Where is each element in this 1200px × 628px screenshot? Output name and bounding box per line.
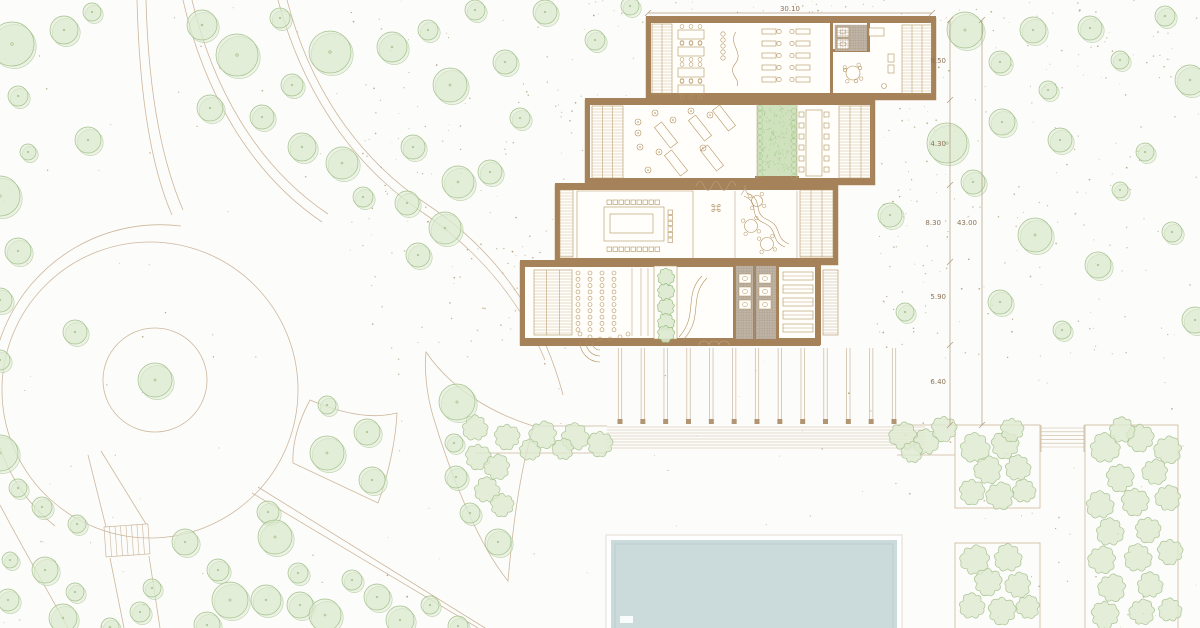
ground-speckle	[552, 219, 553, 220]
side-table	[869, 28, 884, 36]
ground-speckle	[401, 1, 402, 2]
ground-speckle	[391, 347, 392, 348]
ground-speckle	[618, 25, 619, 26]
bush	[994, 544, 1022, 571]
bush	[1124, 544, 1152, 571]
tree-canopy	[1053, 321, 1071, 339]
tree-canopy	[281, 74, 303, 96]
ground-speckle	[961, 288, 963, 290]
tree	[401, 135, 427, 162]
ground-speckle	[425, 207, 426, 208]
ground-speckle	[978, 140, 979, 141]
ground-speckle	[481, 190, 482, 191]
ground-speckle	[1170, 76, 1171, 77]
tree-canopy	[1085, 252, 1111, 278]
tree-canopy	[621, 0, 639, 15]
tree	[258, 520, 294, 557]
ground-speckle	[387, 574, 389, 576]
tree-canopy	[75, 127, 101, 153]
ground-speckle	[898, 189, 900, 191]
ground-speckle	[923, 265, 925, 267]
tree-canopy	[250, 105, 274, 129]
ground-speckle	[1153, 36, 1154, 37]
ground-speckle	[561, 112, 562, 113]
tree	[0, 288, 14, 315]
ground-speckle	[119, 263, 120, 264]
ground-speckle	[978, 354, 979, 355]
ground-speckle	[766, 524, 767, 525]
ground-speckle	[529, 236, 531, 238]
ground-speckle	[1012, 319, 1013, 320]
ground-speckle	[1095, 576, 1096, 577]
tree	[448, 616, 470, 628]
ground-speckle	[582, 150, 583, 151]
path-edge	[137, 0, 172, 215]
tree-canopy	[395, 191, 419, 215]
tree-canopy	[1018, 218, 1052, 252]
ground-speckle	[1009, 22, 1010, 23]
pool-water	[611, 540, 897, 628]
pergola-beam	[755, 348, 760, 424]
ground-speckle	[1061, 50, 1063, 52]
ground-speckle	[893, 309, 894, 310]
ground-speckle	[901, 344, 902, 345]
pergola-post	[869, 419, 874, 424]
ground-speckle	[1079, 10, 1081, 12]
bush	[1016, 595, 1040, 618]
wall	[755, 176, 799, 183]
ground-speckle	[1085, 192, 1086, 193]
ground-speckle	[372, 208, 374, 210]
ground-speckle	[1189, 284, 1191, 286]
ground-speckle	[261, 90, 263, 92]
tree-canopy	[32, 557, 58, 583]
tree	[395, 191, 421, 218]
wall	[520, 260, 525, 345]
building	[520, 16, 936, 362]
tree-canopy	[187, 10, 217, 40]
ground-speckle	[380, 100, 381, 101]
ground-speckle	[142, 336, 144, 338]
tree	[989, 51, 1013, 76]
ground-speckle	[614, 10, 615, 11]
ground-speckle	[1196, 585, 1197, 586]
tree	[172, 529, 200, 558]
ground-speckle	[1011, 331, 1013, 333]
ground-speckle	[555, 105, 556, 106]
ground-speckle	[965, 352, 966, 353]
ground-speckle	[1074, 467, 1075, 468]
ground-speckle	[990, 11, 992, 13]
ground-speckle	[1040, 355, 1041, 356]
ground-speckle	[1070, 352, 1071, 353]
ground-speckle	[1047, 46, 1048, 47]
ground-speckle	[1033, 122, 1034, 123]
dimension-top-label: 30.10	[780, 5, 800, 13]
ground-speckle	[366, 155, 368, 157]
ground-speckle	[373, 87, 375, 89]
tree	[1162, 222, 1184, 245]
tree	[0, 22, 36, 69]
tree	[138, 363, 174, 400]
pergola-post	[892, 419, 897, 424]
tree-canopy	[212, 582, 248, 618]
tree-canopy	[1112, 182, 1128, 198]
ground-speckle	[925, 312, 926, 313]
ground-speckle	[1069, 533, 1070, 534]
tree-canopy	[896, 303, 914, 321]
ground-speckle	[1058, 517, 1060, 519]
ground-speckle	[513, 142, 514, 143]
bush	[988, 597, 1016, 625]
ground-speckle	[560, 423, 561, 424]
ground-speckle	[1167, 59, 1168, 60]
tree	[1175, 65, 1200, 98]
ground-speckle	[1165, 382, 1166, 383]
ground-speckle	[937, 332, 939, 334]
tree-canopy	[270, 8, 290, 28]
ground-speckle	[471, 258, 473, 260]
tree-canopy	[1078, 16, 1102, 40]
ground-speckle	[398, 358, 400, 360]
ground-speckle	[417, 342, 418, 343]
ground-speckle	[1003, 17, 1005, 19]
ground-speckle	[575, 102, 577, 104]
ground-speckle	[1169, 59, 1170, 60]
ground-speckle	[945, 220, 946, 221]
tree-canopy	[130, 602, 150, 622]
tree-canopy	[288, 563, 308, 583]
ground-speckle	[753, 7, 754, 8]
ground-speckle	[831, 6, 832, 7]
site-plan-drawing: 30.10 9.504.308.305.906.4043.00	[0, 0, 1200, 628]
tree-canopy	[1182, 307, 1200, 333]
tree-canopy	[0, 589, 19, 611]
ground-speckle	[390, 142, 391, 143]
ground-speckle	[633, 58, 634, 59]
tree	[8, 86, 30, 109]
pergola-post	[755, 419, 760, 424]
ground-speckle	[911, 179, 912, 180]
ground-speckle	[1031, 576, 1032, 577]
ground-speckle	[1061, 87, 1063, 89]
ground-speckle	[563, 178, 565, 180]
tree-canopy	[5, 238, 31, 264]
ground-speckle	[1031, 102, 1033, 104]
tree	[445, 466, 469, 491]
ground-speckle	[477, 329, 479, 331]
ground-speckle	[1077, 2, 1079, 4]
ground-speckle	[816, 4, 817, 5]
ground-speckle	[1109, 244, 1111, 246]
wall	[733, 266, 736, 339]
tree	[0, 589, 21, 614]
pool-ladder	[620, 616, 633, 623]
ground-speckle	[883, 300, 885, 302]
ground-speckle	[870, 410, 871, 411]
ground-speckle	[409, 128, 410, 129]
ground-speckle	[305, 176, 307, 178]
ground-speckle	[779, 456, 780, 457]
ground-speckle	[512, 251, 514, 253]
ground-speckle	[1078, 136, 1079, 137]
ground-speckle	[517, 287, 518, 288]
ground-speckle	[1055, 243, 1057, 245]
ground-speckle	[46, 88, 48, 90]
ground-speckle	[24, 390, 25, 391]
ground-speckle	[446, 33, 447, 34]
ground-speckle	[1127, 614, 1129, 616]
tree-canopy	[197, 95, 223, 121]
louver-panel	[823, 270, 838, 335]
ground-speckle	[1120, 626, 1121, 627]
pergola-beam	[663, 348, 668, 424]
ground-speckle	[1141, 486, 1142, 487]
ground-speckle	[817, 10, 819, 12]
ground-speckle	[909, 108, 910, 109]
tree	[49, 604, 79, 628]
ground-speckle	[375, 133, 377, 135]
ground-speckle	[374, 276, 376, 278]
ground-speckle	[1125, 94, 1127, 96]
ground-speckle	[165, 312, 166, 313]
ground-speckle	[558, 105, 559, 106]
ground-speckle	[1133, 54, 1134, 55]
ground-speckle	[368, 218, 369, 219]
wall	[867, 23, 870, 51]
ground-speckle	[1146, 62, 1147, 63]
ground-speckle	[526, 91, 528, 93]
ground-speckle	[320, 153, 321, 154]
ground-speckle	[968, 216, 969, 217]
bush	[494, 424, 520, 450]
ground-speckle	[227, 211, 228, 212]
ground-speckle	[115, 455, 116, 456]
tree	[878, 203, 904, 230]
ground-speckle	[395, 159, 396, 160]
dimension-total-label: 43.00	[957, 219, 977, 227]
ground-speckle	[532, 257, 534, 259]
ground-speckle	[372, 323, 374, 325]
ground-speckle	[1015, 226, 1017, 228]
ground-speckle	[202, 573, 203, 574]
ground-speckle	[460, 149, 461, 150]
tree-canopy	[1136, 143, 1154, 161]
ground-speckle	[926, 122, 928, 124]
path-edge	[252, 493, 478, 628]
ground-speckle	[893, 246, 895, 248]
tree	[288, 563, 310, 586]
ground-speckle	[948, 70, 950, 72]
ground-speckle	[448, 37, 449, 38]
ground-speckle	[598, 14, 599, 15]
tree	[493, 50, 519, 77]
wall	[555, 183, 838, 190]
ground-speckle	[1057, 222, 1058, 223]
tree	[445, 434, 465, 455]
ground-speckle	[421, 326, 423, 328]
tree	[621, 0, 641, 18]
ground-speckle	[502, 339, 503, 340]
ground-speckle	[1030, 276, 1032, 278]
ground-speckle	[976, 9, 977, 10]
pergola-beam	[686, 348, 691, 424]
ground-speckle	[1157, 31, 1159, 33]
pergola-post	[663, 419, 668, 424]
ground-speckle	[886, 296, 887, 297]
tree	[1053, 321, 1073, 342]
ground-speckle	[1099, 159, 1100, 160]
stair	[104, 524, 150, 557]
wall	[585, 98, 875, 105]
ground-speckle	[675, 2, 676, 3]
tree-canopy	[465, 0, 485, 20]
ground-speckle	[442, 140, 443, 141]
ground-speckle	[1164, 357, 1165, 358]
ground-speckle	[1126, 227, 1127, 228]
ground-speckle	[987, 313, 988, 314]
ground-speckle	[375, 112, 376, 113]
tree	[460, 503, 482, 526]
tree	[68, 515, 88, 536]
tree	[342, 570, 364, 593]
tree	[309, 599, 343, 628]
ground-speckle	[923, 282, 924, 283]
tree-canopy	[406, 243, 430, 267]
dimension-segment-label: 5.90	[930, 293, 946, 301]
ground-speckle	[1174, 334, 1175, 335]
ground-speckle	[149, 152, 151, 154]
bush	[490, 493, 514, 516]
ground-speckle	[425, 126, 426, 127]
tree-canopy	[50, 16, 78, 44]
ground-speckle	[431, 174, 432, 175]
ground-speckle	[910, 189, 911, 190]
ground-speckle	[384, 185, 385, 186]
ground-speckle	[863, 4, 864, 5]
tree-canopy	[288, 133, 316, 161]
path-edge	[110, 558, 124, 628]
ground-speckle	[408, 72, 409, 73]
wall	[585, 98, 590, 185]
ground-speckle	[547, 82, 548, 83]
ground-speckle	[427, 221, 429, 223]
dimension-segment-label: 6.40	[930, 378, 946, 386]
tree	[66, 583, 86, 604]
ground-speckle	[621, 12, 623, 14]
tree-canopy	[429, 212, 461, 244]
ground-speckle	[821, 11, 822, 12]
ground-speckle	[497, 196, 498, 197]
swimming-pool	[606, 535, 902, 628]
ground-speckle	[381, 28, 383, 30]
ground-speckle	[802, 5, 803, 6]
ground-speckle	[1110, 185, 1111, 186]
tree	[318, 396, 338, 417]
ground-speckle	[436, 64, 438, 66]
bush	[1129, 599, 1155, 625]
pergola-post	[823, 419, 828, 424]
ground-speckle	[106, 384, 108, 386]
wc-stall	[759, 287, 771, 296]
ground-speckle	[968, 259, 970, 261]
ground-speckle	[985, 518, 986, 519]
site-plan-canvas: 30.10 9.504.308.305.906.4043.00	[0, 0, 1200, 628]
ground-speckle	[560, 116, 562, 118]
ground-speckle	[939, 271, 940, 272]
ground-speckle	[403, 87, 404, 88]
pergola-beam	[892, 348, 897, 424]
bush	[1155, 485, 1181, 511]
tree	[50, 16, 80, 47]
tree-canopy	[989, 51, 1011, 73]
ground-speckle	[557, 90, 558, 91]
ground-speckle	[510, 329, 511, 330]
bush	[1088, 546, 1116, 574]
ground-speckle	[959, 10, 960, 11]
wall	[646, 16, 651, 100]
ground-speckle	[398, 113, 399, 114]
ground-speckle	[365, 140, 366, 141]
tree	[510, 108, 532, 131]
ground-speckle	[809, 11, 810, 12]
ground-speckle	[1119, 83, 1120, 84]
ground-speckle	[453, 277, 455, 279]
tree-canopy	[251, 585, 281, 615]
ground-speckle	[1133, 0, 1135, 1]
ground-speckle	[1021, 515, 1022, 516]
ground-speckle	[123, 571, 124, 572]
ground-speckle	[351, 221, 352, 222]
ground-speckle	[255, 356, 256, 358]
bush	[1086, 491, 1114, 518]
tree-canopy	[460, 503, 480, 523]
tree-canopy	[439, 384, 475, 420]
ground-speckle	[4, 622, 5, 623]
pergola-post	[777, 419, 782, 424]
pergola-beam	[869, 348, 874, 424]
ground-speckle	[1023, 212, 1024, 213]
ground-speckle	[1089, 328, 1091, 330]
ground-speckle	[546, 56, 548, 58]
ground-speckle	[946, 17, 947, 18]
bush	[1142, 459, 1168, 485]
ground-speckle	[1112, 173, 1113, 174]
ground-speckle	[906, 225, 907, 226]
ground-speckle	[449, 302, 451, 304]
ground-speckle	[959, 321, 960, 322]
tree-canopy	[258, 520, 292, 554]
ground-speckle	[417, 172, 418, 173]
armchair	[888, 65, 894, 73]
tree	[187, 10, 219, 43]
ground-speckle	[40, 541, 41, 542]
ground-speckle	[362, 245, 364, 247]
tree-canopy	[8, 86, 28, 106]
tree-canopy	[510, 108, 530, 128]
ground-speckle	[407, 221, 408, 222]
ground-speckle	[1163, 66, 1165, 68]
bush	[552, 438, 573, 459]
wc-stall	[739, 300, 751, 309]
pergola-beam	[777, 348, 782, 424]
tree-canopy	[354, 419, 380, 445]
ground-speckle	[954, 198, 955, 199]
tree-canopy	[143, 579, 161, 597]
ground-speckle	[514, 266, 515, 267]
tree-canopy	[326, 147, 358, 179]
ground-speckle	[1055, 528, 1056, 529]
